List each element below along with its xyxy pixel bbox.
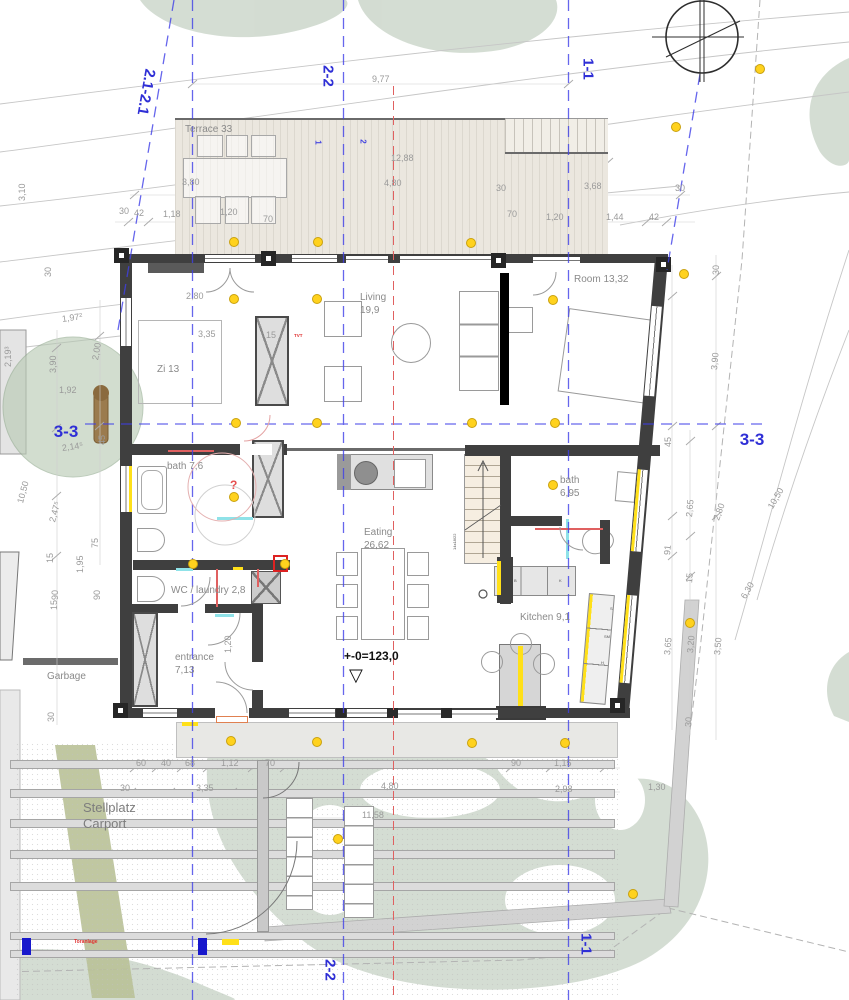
kitchen-counter-end <box>337 454 351 490</box>
survey-point-dot <box>333 834 343 844</box>
dimension-label: 4,80 <box>384 178 402 188</box>
axis-node <box>610 698 625 713</box>
dimension-label: 1,20 <box>223 635 233 653</box>
dimension-label: 68 <box>185 758 195 768</box>
survey-point-dot <box>280 559 290 569</box>
partition-wall <box>500 273 509 405</box>
room-label-wc-laundry: WC / laundry 2,8 <box>171 585 245 598</box>
round-table <box>391 323 431 363</box>
dimension-label: 60 <box>136 758 146 768</box>
chair <box>336 616 358 640</box>
question-note: ? <box>230 479 237 491</box>
survey-point-dot <box>229 294 239 304</box>
chair <box>407 552 429 576</box>
window <box>400 256 495 263</box>
insulation-mark <box>233 567 243 570</box>
axis-node <box>114 248 129 263</box>
survey-point-dot <box>628 889 638 899</box>
room-label-room: Room 13,32 <box>574 274 628 287</box>
chair <box>336 552 358 576</box>
terrace-chair <box>195 196 221 224</box>
dimension-label: 1,30 <box>648 782 666 792</box>
section-1-1-top: 1-1 <box>580 58 597 80</box>
dimension-label: 30 <box>46 712 56 722</box>
survey-point-dot <box>312 418 322 428</box>
wc-wall <box>133 560 290 570</box>
dimension-label: 30 <box>711 265 721 275</box>
dimension-label: 75 <box>90 538 100 548</box>
dimension-label: 30 <box>119 206 129 216</box>
masonry-pier <box>132 612 158 707</box>
dimension-label: 40 <box>161 758 171 768</box>
section-2-2-top: 2-2 <box>320 65 337 87</box>
gate-sensor <box>222 939 239 945</box>
dimension-label: 90 <box>92 590 102 600</box>
dimension-label: 2,80 <box>186 291 204 301</box>
section-3-3-left: 3-3 <box>54 422 79 442</box>
survey-point-dot <box>466 238 476 248</box>
dimension-label: 11,58 <box>362 810 384 820</box>
dimension-label: 2,98 <box>555 784 573 794</box>
revision-line <box>168 450 214 452</box>
dimension-label: 30 <box>496 183 506 193</box>
axis-node <box>656 257 671 272</box>
chair <box>336 584 358 608</box>
entrance-wall <box>252 604 263 662</box>
room-label-terrace: Terrace 33 <box>185 124 232 137</box>
exterior-wall-top <box>120 254 668 263</box>
cabinet-label: K <box>559 578 562 583</box>
window <box>292 255 337 262</box>
floor-plan-canvas: 2.1-2.12-21-13-33-32-21-112Terrace 33Zi … <box>0 0 849 1000</box>
survey-point-dot <box>671 122 681 132</box>
axis-number: 1 <box>314 140 323 144</box>
survey-point-dot <box>679 269 689 279</box>
window <box>347 709 387 717</box>
window <box>143 709 177 717</box>
dimension-label: 3,90 <box>709 352 720 370</box>
survey-point-dot <box>467 418 477 428</box>
outdoor-steps <box>286 798 313 910</box>
section-3-3-right: 3-3 <box>740 430 765 450</box>
dimension-label: 15 <box>49 600 59 610</box>
dimension-label: 3,10 <box>17 183 27 201</box>
dining-table <box>361 548 405 640</box>
survey-point-dot <box>548 480 558 490</box>
bath-partition <box>510 516 562 526</box>
dimension-label: 3,20 <box>685 635 696 653</box>
toilet <box>137 528 165 552</box>
survey-point-dot <box>313 237 323 247</box>
window <box>346 256 388 263</box>
bathtub-inner <box>141 470 163 510</box>
dimension-label: 91 <box>662 545 673 556</box>
axis-node <box>491 253 506 268</box>
stove <box>394 459 426 488</box>
armchair <box>324 301 362 337</box>
room-label-zi13: Zi 13 <box>157 364 179 377</box>
survey-point-dot <box>312 737 322 747</box>
dimension-label: 70 <box>263 214 273 224</box>
insulation-mark <box>497 561 501 595</box>
dimension-label: 1,18 <box>163 209 181 219</box>
revision-line <box>535 528 603 530</box>
dimension-label: 2,65 <box>684 499 695 517</box>
threshold-mark <box>217 517 253 520</box>
window <box>121 298 131 346</box>
dimension-label: 3,80 <box>182 177 200 187</box>
gate-post <box>198 938 207 955</box>
dimension-label: 42 <box>134 208 144 218</box>
survey-point-dot <box>231 418 241 428</box>
dimension-label: 1,20 <box>220 207 238 217</box>
window <box>533 257 580 264</box>
window <box>452 710 498 718</box>
interior-wall-thin <box>287 448 467 451</box>
facade-post <box>387 708 398 718</box>
room-label-kitchen: Kitchen 9,1 <box>520 612 570 625</box>
armchair <box>324 366 362 402</box>
survey-point-dot <box>229 237 239 247</box>
room-label-eating: Eating 26,62 <box>364 527 392 552</box>
toilet <box>137 576 165 602</box>
dimension-label: 1,15 <box>554 758 572 768</box>
dimension-label: 15 <box>45 553 55 563</box>
axis-node <box>261 251 276 266</box>
dimension-label: 1,92 <box>59 385 77 395</box>
survey-point-dot <box>685 618 695 628</box>
terrace-chair <box>251 135 276 157</box>
dimension-label: 3,68 <box>584 181 602 191</box>
survey-point-dot <box>560 738 570 748</box>
window <box>205 255 255 262</box>
room-label-entrance: entrance 7,13 <box>175 652 214 677</box>
bath-partition <box>600 520 610 564</box>
survey-point-dot <box>548 295 558 305</box>
dimension-label: 30 <box>120 783 130 793</box>
carport-beam <box>10 789 615 798</box>
interior-wall <box>465 445 660 456</box>
dimension-label: 1,95 <box>75 555 85 573</box>
cabinet-label: B <box>514 578 517 583</box>
stool <box>481 651 503 673</box>
entrance-door-mat <box>216 716 248 723</box>
interior-door-gap <box>240 444 272 455</box>
survey-point-dot <box>550 418 560 428</box>
terrace-chair <box>197 135 223 157</box>
gate-post <box>22 938 31 955</box>
dimension-label: 15 <box>266 330 276 340</box>
dimension-label: 42 <box>649 212 659 222</box>
tvt-note: TVT <box>294 334 303 339</box>
dimension-label: 4,80 <box>381 781 399 791</box>
survey-point-dot <box>755 64 765 74</box>
axis-node <box>113 703 128 718</box>
stair-note: 14x18/22 <box>453 534 457 550</box>
terrace-steps <box>505 118 608 154</box>
gate-label: Toranlage <box>74 940 98 945</box>
dimension-label: 1,44 <box>606 212 624 222</box>
window <box>397 710 441 718</box>
dimension-label: 1,12 <box>221 758 239 768</box>
chair <box>407 616 429 640</box>
outdoor-steps <box>344 806 374 918</box>
survey-point-dot <box>312 294 322 304</box>
cabinet-label: SM <box>604 634 610 639</box>
chair <box>407 584 429 608</box>
dimension-label: 45 <box>97 435 107 445</box>
dimension-label: 9,77 <box>372 74 390 84</box>
insulation-mark <box>182 722 198 726</box>
dimension-label: 3,50 <box>712 637 723 655</box>
dimension-label: 1,20 <box>546 212 564 222</box>
entrance-wall <box>252 690 263 716</box>
dimension-label: 30 <box>683 717 694 728</box>
room-label-bath-2: bath 6,95 <box>560 475 579 500</box>
gate-rail <box>10 932 615 940</box>
dimension-label: 30 <box>43 267 53 277</box>
revision-line <box>257 569 259 587</box>
room-label-carport: Stellplatz Carport <box>83 800 136 833</box>
porch <box>176 722 618 758</box>
window <box>289 709 335 717</box>
garden-wall <box>257 760 269 932</box>
section-2-2-bottom: 2-2 <box>322 959 339 981</box>
facade-post <box>336 708 346 718</box>
gate-rail <box>10 950 615 958</box>
dimension-label: 3,35 <box>198 329 216 339</box>
dimension-label: 2,19³ <box>3 346 13 367</box>
level-marker: +-0=123,0 <box>344 650 399 662</box>
dimension-label: 3,35 <box>196 783 214 793</box>
window-insulation <box>129 466 132 512</box>
terrace-chair <box>226 135 248 157</box>
survey-point-dot <box>226 736 236 746</box>
axis-number: 2 <box>359 139 368 143</box>
dimension-label: 90 <box>511 758 521 768</box>
room-label-living: Living 19,9 <box>360 292 386 317</box>
dimension-label: 70 <box>265 758 275 768</box>
dimension-label: 30 <box>675 183 685 193</box>
dimension-label: 70 <box>507 209 517 219</box>
side-table <box>507 307 533 333</box>
island-stripe <box>518 646 523 708</box>
room-label-garbage: Garbage <box>47 671 86 684</box>
level-triangle: ▽ <box>349 666 363 684</box>
survey-point-dot <box>467 738 477 748</box>
dimension-label: 12,88 <box>391 153 414 163</box>
threshold-mark <box>566 519 569 559</box>
dimension-label: 3,90 <box>48 355 58 373</box>
room-label-bath-1: bath 7,6 <box>167 461 203 474</box>
dimension-label: 45 <box>663 437 673 447</box>
staircase <box>464 454 501 564</box>
survey-point-dot <box>229 492 239 502</box>
cabinet-label: H <box>601 660 604 665</box>
facade-post <box>441 708 452 718</box>
carport-beam <box>10 760 615 769</box>
dimension-label: 15 <box>684 573 695 584</box>
washing-machine <box>251 571 281 604</box>
stool <box>533 653 555 675</box>
dimension-label: 90 <box>50 590 60 600</box>
sofa <box>459 291 499 391</box>
survey-point-dot <box>188 559 198 569</box>
cabinet-label: S <box>610 606 613 611</box>
section-1-1-bottom: 1-1 <box>578 933 595 955</box>
kitchen-sink <box>354 461 378 485</box>
threshold-mark <box>215 614 234 617</box>
dimension-label: 3,65 <box>662 637 673 655</box>
